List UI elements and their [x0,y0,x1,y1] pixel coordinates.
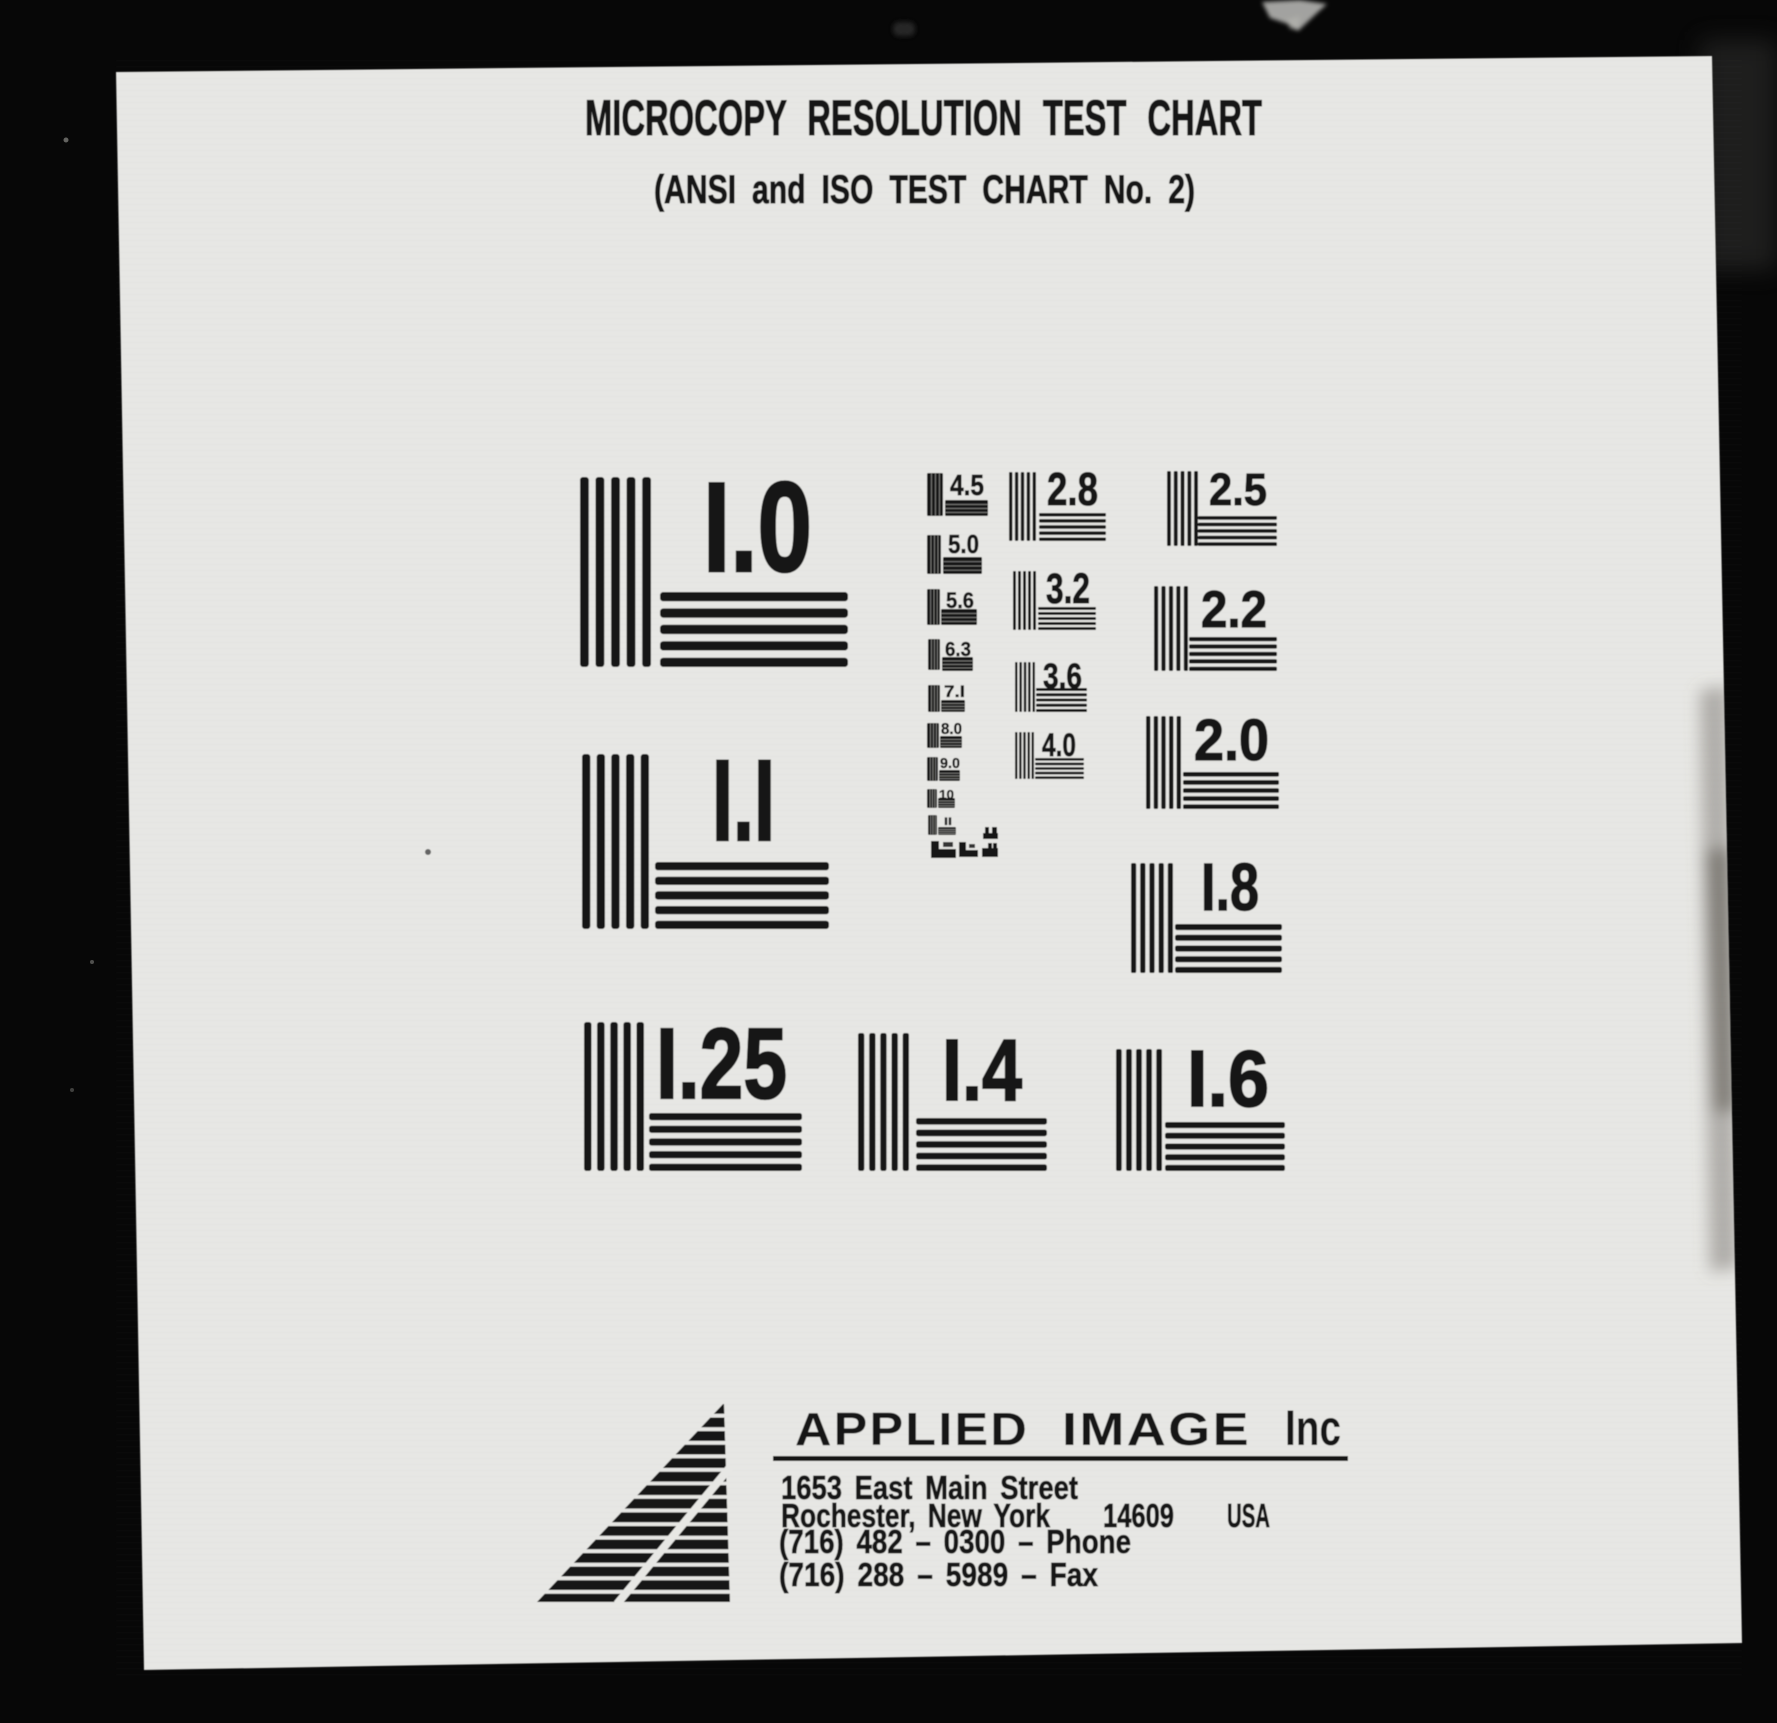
svg-text:10: 10 [939,787,954,802]
svg-text:5.6: 5.6 [946,588,974,613]
svg-text:3.6: 3.6 [1043,657,1082,696]
svg-text:2.0: 2.0 [1194,708,1269,773]
svg-text:(716) 288 – 5989 – Fax: (716) 288 – 5989 – Fax [779,1556,1099,1593]
svg-text:(ANSI and ISO TEST CHART No. 2: (ANSI and ISO TEST CHART No. 2) [654,168,1195,212]
svg-text:2.5: 2.5 [1209,464,1267,515]
svg-text:9.0: 9.0 [940,755,960,772]
svg-text:6.3: 6.3 [945,639,971,661]
svg-text:IMAGE: IMAGE [1062,1403,1251,1455]
svg-text:II: II [944,816,952,828]
svg-text:4.5: 4.5 [950,470,984,502]
svg-text:I.4: I.4 [942,1022,1022,1119]
svg-text:I.6: I.6 [1187,1034,1269,1123]
svg-text:2.8: 2.8 [1047,463,1098,515]
svg-text:(716) 482 – 0300 – Phone: (716) 482 – 0300 – Phone [779,1523,1131,1560]
svg-text:I.8: I.8 [1201,850,1259,925]
svg-text:3.2: 3.2 [1046,565,1090,613]
svg-text:Inc: Inc [1285,1400,1341,1456]
svg-text:8.0: 8.0 [941,721,962,738]
svg-text:7.I: 7.I [944,682,965,701]
svg-text:I.0: I.0 [703,456,812,598]
svg-text:4.0: 4.0 [1042,727,1076,763]
svg-text:APPLIED: APPLIED [795,1403,1029,1455]
svg-text:MICROCOPY RESOLUTION TEST CHAR: MICROCOPY RESOLUTION TEST CHART [585,90,1262,146]
svg-text:2.2: 2.2 [1201,581,1267,639]
svg-text:I.I: I.I [712,737,775,865]
svg-text:I.25: I.25 [656,1008,787,1120]
svg-text:USA: USA [1227,1497,1270,1534]
svg-text:5.0: 5.0 [948,529,979,559]
